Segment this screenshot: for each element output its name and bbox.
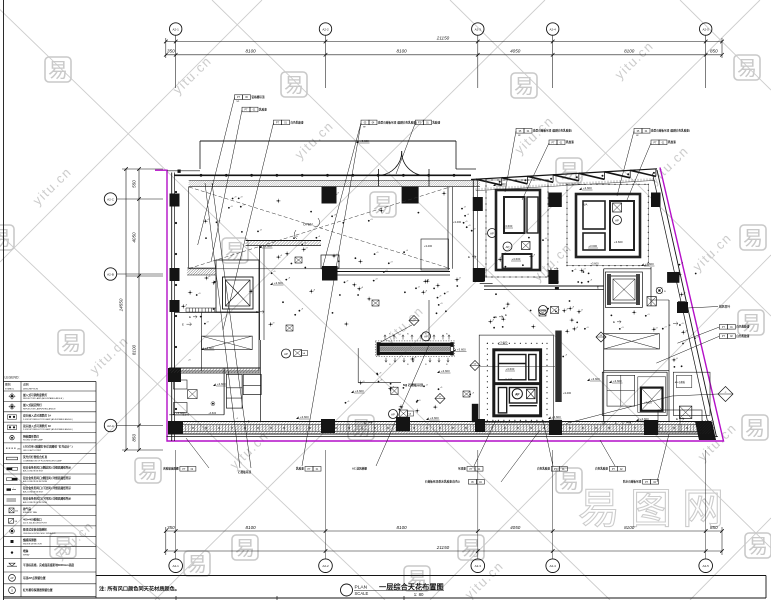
- svg-text:LEGEND:: LEGEND:: [5, 376, 20, 380]
- svg-text:OPEN: OPEN: [303, 223, 313, 227]
- svg-text:石膏板吊顶: 石膏板吊顶: [237, 470, 251, 474]
- svg-text:+3.600: +3.600: [591, 262, 600, 266]
- svg-text:850: 850: [710, 525, 718, 530]
- svg-text:A2-B: A2-B: [107, 272, 114, 276]
- svg-text:吸顶式安装音箱喇叭: 吸顶式安装音箱喇叭: [23, 528, 47, 532]
- svg-text:E: E: [182, 323, 184, 327]
- svg-text:LED灯带 (暗藏灯带详见图纸 "灯光设计" ): LED灯带 (暗藏灯带详见图纸 "灯光设计" ): [23, 445, 73, 449]
- svg-text:铝合金条形风口(侧回风) 详细见图纸所示: 铝合金条形风口(侧回风) 详细见图纸所示: [23, 476, 72, 480]
- svg-text:+3.400: +3.400: [504, 378, 513, 382]
- svg-text:4050: 4050: [510, 49, 521, 54]
- svg-text:+3.600: +3.600: [205, 346, 214, 350]
- svg-text:造型石膏板吊顶 (面刷白色乳胶漆): 造型石膏板吊顶 (面刷白色乳胶漆): [378, 120, 417, 124]
- svg-text:CEILING HOSTED MISC SPEAKER: CEILING HOSTED MISC SPEAKER: [23, 532, 56, 535]
- svg-text:易: 易: [61, 333, 81, 355]
- svg-text:21150: 21150: [436, 36, 450, 41]
- svg-text:A2-4: A2-4: [550, 27, 557, 31]
- svg-text:+3.600: +3.600: [457, 348, 466, 352]
- svg-text:+3.600: +3.600: [613, 379, 622, 383]
- svg-text:AP: AP: [424, 335, 428, 339]
- svg-text:8100: 8100: [624, 525, 635, 530]
- svg-text:+3.400: +3.400: [563, 391, 572, 395]
- svg-text:+3.400: +3.400: [424, 244, 433, 248]
- svg-text:SCALE: SCALE: [355, 591, 369, 596]
- svg-text:14550: 14550: [119, 298, 124, 311]
- svg-text:+3.600: +3.600: [274, 281, 283, 285]
- svg-text:红外幕帘探测器预留位置: 红外幕帘探测器预留位置: [22, 588, 53, 592]
- svg-text:易: 易: [514, 76, 534, 98]
- svg-text:8100: 8100: [245, 525, 256, 530]
- svg-text:铝合金条形风口(下送风) 详细见图纸所示: 铝合金条形风口(下送风) 详细见图纸所示: [23, 486, 72, 490]
- svg-text:A2-C: A2-C: [107, 197, 115, 201]
- svg-text:夹胶玻璃雨棚: 夹胶玻璃雨棚: [163, 467, 179, 471]
- svg-text:易: 易: [187, 554, 207, 576]
- svg-text:荧光灯灯管组合灯具: 荧光灯灯管组合灯具: [22, 455, 47, 459]
- svg-text:乳胶漆: 乳胶漆: [668, 140, 676, 144]
- svg-text:易: 易: [741, 313, 761, 335]
- svg-text:白色乳胶漆: 白色乳胶漆: [291, 120, 304, 124]
- svg-text:白色乳胶漆: 白色乳胶漆: [595, 467, 608, 471]
- svg-text:4050: 4050: [132, 232, 137, 243]
- svg-text:A2-3: A2-3: [475, 27, 482, 31]
- svg-text:造型石膏板吊顶 (面刷白色乳胶漆): 造型石膏板吊顶 (面刷白色乳胶漆): [533, 129, 572, 133]
- svg-text:SYMBOL: SYMBOL: [5, 389, 15, 391]
- svg-text:易: 易: [737, 58, 757, 80]
- svg-text:2 GROUP REFLECTOR LAMP (ADJUST: 2 GROUP REFLECTOR LAMP (ADJUSTABLE ANGLE…: [23, 428, 73, 431]
- svg-text:+3.600: +3.600: [499, 341, 508, 345]
- svg-text:造型石膏板吊顶 (面刷白色乳胶漆): 造型石膏板吊顶 (面刷白色乳胶漆): [651, 129, 690, 133]
- svg-text:850: 850: [132, 434, 137, 442]
- svg-text:AC 送风格栅: AC 送风格栅: [352, 467, 367, 471]
- svg-text:+3.600: +3.600: [583, 186, 592, 190]
- svg-text:易: 易: [373, 195, 393, 217]
- svg-text:+3.600: +3.600: [217, 382, 226, 386]
- svg-text:+3.600: +3.600: [441, 369, 450, 373]
- svg-text:+3.600: +3.600: [512, 257, 521, 261]
- svg-text:8100: 8100: [132, 344, 137, 355]
- svg-text:REFLECTOR LAMP (ADJUSTABLE ANG: REFLECTOR LAMP (ADJUSTABLE ANGLE ): [23, 397, 64, 400]
- svg-text:↓: ↓: [13, 487, 14, 490]
- svg-text:LED LIGHTS STRIP: LED LIGHTS STRIP: [23, 450, 42, 452]
- svg-text:白色乳胶漆: 白色乳胶漆: [736, 334, 749, 338]
- svg-text:防水石膏板吊顶: 防水石膏板吊顶: [623, 480, 642, 484]
- svg-text:铝合金条形风口(下回风) 详细见图纸所示: 铝合金条形风口(下回风) 详细见图纸所示: [23, 497, 72, 501]
- svg-text:NP.: NP.: [518, 135, 521, 137]
- svg-text:易: 易: [0, 228, 11, 250]
- svg-text:易: 易: [743, 228, 763, 250]
- svg-text:说明: 说明: [23, 383, 29, 387]
- svg-text:+3.600: +3.600: [588, 244, 597, 248]
- svg-text:AP: AP: [615, 218, 619, 222]
- svg-text:+3.400: +3.400: [453, 220, 462, 224]
- svg-text:4050: 4050: [510, 525, 521, 530]
- svg-text:吊顶漆: 吊顶漆: [458, 467, 466, 471]
- svg-text:+3.600: +3.600: [430, 416, 439, 420]
- svg-text:SMOKE DETECTOR: SMOKE DETECTOR: [23, 543, 42, 545]
- svg-text:易: 易: [235, 538, 255, 560]
- svg-text:520: 520: [15, 510, 18, 512]
- svg-text:E: E: [189, 315, 191, 319]
- svg-text:A2-5: A2-5: [703, 27, 710, 31]
- svg-text:白色乳胶漆: 白色乳胶漆: [736, 325, 749, 329]
- svg-text:+3.600: +3.600: [300, 415, 309, 419]
- svg-text:AIR-CONDITION EXIT: AIR-CONDITION EXIT: [23, 470, 44, 473]
- svg-text:COMBINATION OF FLUORESCENT LAM: COMBINATION OF FLUORESCENT LAMP: [23, 459, 62, 462]
- svg-text:AP: AP: [284, 352, 288, 356]
- svg-text:8100: 8100: [396, 525, 407, 530]
- svg-text:白色乳胶漆: 白色乳胶漆: [537, 467, 550, 471]
- svg-text:AP: AP: [10, 577, 14, 580]
- svg-text:+3.600: +3.600: [360, 139, 369, 143]
- svg-text:易: 易: [138, 461, 158, 483]
- svg-text:AP: AP: [391, 412, 395, 416]
- svg-text:DESCRIPTION: DESCRIPTION: [23, 389, 38, 391]
- svg-text:A5: A5: [602, 421, 606, 425]
- svg-text:PLAN: PLAN: [355, 585, 368, 591]
- svg-text:乳胶漆: 乳胶漆: [432, 120, 440, 124]
- svg-text:易: 易: [284, 75, 304, 97]
- svg-text:SPRAY: SPRAY: [23, 553, 30, 556]
- svg-text:排气扇: 排气扇: [23, 507, 31, 511]
- svg-text:EXHAUST FAN: EXHAUST FAN: [23, 511, 37, 514]
- svg-text:AP: AP: [506, 245, 510, 249]
- svg-text:+3.600: +3.600: [176, 411, 185, 415]
- svg-text:注: 所有风口颜色同天花材质颜色。: 注: 所有风口颜色同天花材质颜色。: [99, 585, 180, 593]
- svg-text:乳胶漆: 乳胶漆: [566, 140, 574, 144]
- svg-text:易: 易: [559, 471, 579, 493]
- svg-text:+3.600: +3.600: [504, 224, 513, 228]
- svg-text:850: 850: [710, 49, 718, 54]
- svg-text:E: E: [615, 421, 617, 425]
- svg-text:400×400检修口: 400×400检修口: [23, 517, 42, 521]
- svg-text:A2-1: A2-1: [173, 27, 180, 31]
- svg-text:2 GROUP REFLECTOR LAMP (ADJUST: 2 GROUP REFLECTOR LAMP (ADJUSTABLE ANGLE…: [23, 418, 73, 421]
- svg-text:易: 易: [748, 536, 768, 558]
- svg-text:A2-2: A2-2: [322, 27, 329, 31]
- svg-text:400 X 400 ACCESS PORT: 400 X 400 ACCESS PORT: [23, 522, 48, 525]
- svg-text:E: E: [256, 310, 258, 314]
- svg-text:烟感探测器: 烟感探测器: [23, 538, 37, 542]
- svg-text:易: 易: [745, 418, 765, 440]
- svg-text:A2-3: A2-3: [475, 564, 482, 568]
- svg-text:8100: 8100: [396, 49, 407, 54]
- svg-text:+3.600: +3.600: [552, 415, 561, 419]
- svg-text:21150: 21150: [436, 545, 450, 550]
- svg-text:E: E: [364, 421, 366, 425]
- svg-text:+3.600: +3.600: [506, 367, 515, 371]
- svg-text:A2-1: A2-1: [173, 564, 180, 568]
- svg-text:A2-4: A2-4: [550, 564, 557, 568]
- svg-text:8100: 8100: [245, 49, 256, 54]
- svg-text:+3.600: +3.600: [263, 244, 272, 248]
- svg-text:1: 80: 1: 80: [414, 592, 424, 597]
- svg-text:+3.600: +3.600: [645, 262, 654, 266]
- svg-text:易: 易: [48, 60, 68, 82]
- svg-text:AIR-CONDITION RETURN: AIR-CONDITION RETURN: [23, 480, 48, 483]
- svg-text:双头嵌入式可调筒灯 3#: 双头嵌入式可调筒灯 3#: [23, 424, 51, 428]
- svg-text:ROUND DOME LAMP: ROUND DOME LAMP: [23, 439, 44, 442]
- svg-text:+3.600: +3.600: [591, 377, 600, 381]
- svg-text:AP: AP: [490, 231, 494, 235]
- svg-text:E: E: [550, 267, 552, 271]
- svg-text:LED: LED: [17, 448, 21, 450]
- svg-text:N/A: N/A: [583, 203, 588, 207]
- svg-text:排风百叶: 排风百叶: [719, 305, 730, 309]
- svg-text:+3.600: +3.600: [355, 389, 364, 393]
- svg-text:AIR-CONDITION EXIT: AIR-CONDITION EXIT: [23, 490, 44, 493]
- svg-text:石膏板吊顶(防水乳胶漆(白色)): 石膏板吊顶(防水乳胶漆(白色)): [424, 480, 460, 484]
- svg-text:+3.600: +3.600: [640, 417, 649, 421]
- svg-text:喷淋: 喷淋: [23, 549, 29, 553]
- svg-text:8100: 8100: [624, 49, 635, 54]
- svg-text:双头嵌入式可调筒灯 1#: 双头嵌入式可调筒灯 1#: [23, 414, 51, 418]
- svg-text:E: E: [495, 315, 497, 319]
- svg-text:REFLECTOR LAMP(FIXED) ANGLE: REFLECTOR LAMP(FIXED) ANGLE: [23, 407, 56, 410]
- svg-text:明装圆形筒灯: 明装圆形筒灯: [23, 434, 39, 438]
- svg-text:铝合金条形风口(侧送风) 详细见图纸所示: 铝合金条形风口(侧送风) 详细见图纸所示: [23, 465, 72, 469]
- svg-text:E: E: [676, 417, 678, 421]
- svg-text:350: 350: [167, 525, 175, 530]
- svg-text:E: E: [505, 313, 507, 317]
- svg-text:+3.600: +3.600: [497, 182, 506, 186]
- svg-text:图例: 图例: [5, 383, 11, 387]
- svg-text:NP.: NP.: [237, 101, 240, 103]
- svg-text:平顶标高线，完成面高度距地3600mm高度: 平顶标高线，完成面高度距地3600mm高度: [23, 563, 74, 567]
- svg-text:吊顶AP点预留位置: 吊顶AP点预留位置: [23, 576, 46, 580]
- svg-text:A2-2: A2-2: [322, 564, 329, 568]
- svg-text:嵌入式可调角度筒灯: 嵌入式可调角度筒灯: [23, 393, 47, 397]
- svg-text:E: E: [468, 255, 470, 259]
- svg-text:乳胶漆: 乳胶漆: [259, 107, 267, 111]
- svg-text:E: E: [613, 320, 615, 324]
- svg-text:S: S: [11, 589, 13, 593]
- svg-text:NP.: NP.: [363, 127, 366, 129]
- svg-text:350: 350: [167, 49, 175, 54]
- svg-text:A2-A: A2-A: [107, 424, 114, 428]
- svg-text:嵌入式固定筒灯: 嵌入式固定筒灯: [23, 403, 42, 407]
- svg-text:AIR-CONDITION RETURN: AIR-CONDITION RETURN: [23, 501, 48, 504]
- svg-text:铝格栅吊顶: 铝格栅吊顶: [252, 95, 265, 99]
- svg-text:A2-5: A2-5: [703, 564, 710, 568]
- svg-text:E: E: [597, 286, 599, 290]
- svg-text:550: 550: [132, 180, 137, 188]
- svg-text:+3.600: +3.600: [614, 240, 623, 244]
- svg-text:乳胶漆: 乳胶漆: [296, 467, 304, 471]
- svg-text:NP.: NP.: [636, 135, 639, 137]
